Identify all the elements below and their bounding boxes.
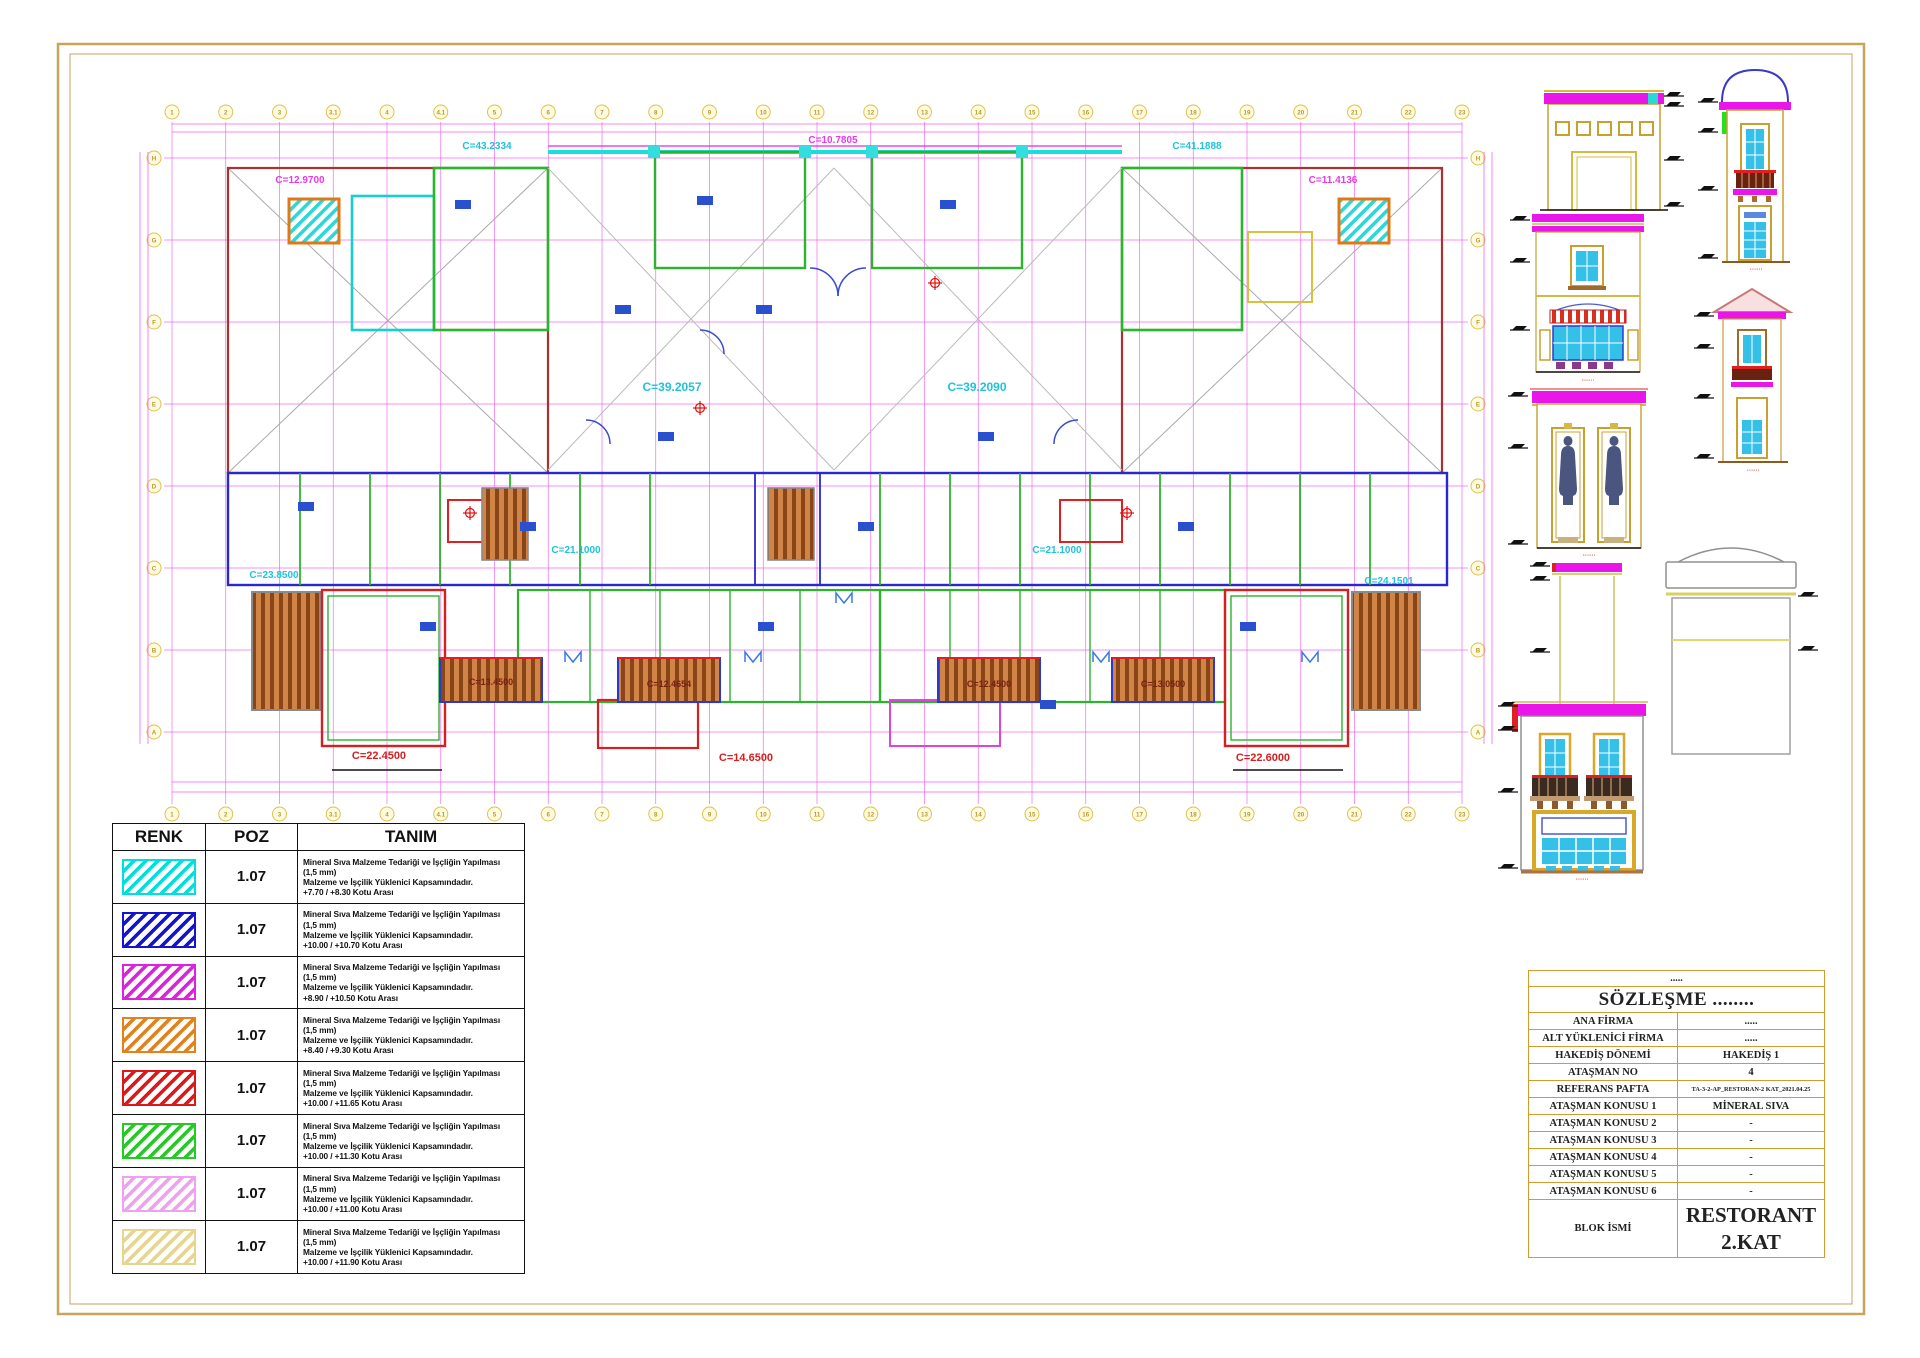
legend-color-cell (113, 1062, 206, 1114)
plan-grid: 1122333.13.1444.14.155667788991010111112… (147, 105, 1485, 821)
svg-text:9: 9 (708, 109, 712, 116)
legend-desc: Mineral Sıva Malzeme Tedariği ve İşçliği… (298, 1221, 524, 1274)
svg-text:4.1: 4.1 (436, 811, 445, 818)
svg-text:1: 1 (170, 811, 174, 818)
titleblock-value: MİNERAL SIVA (1678, 1098, 1824, 1114)
plan-label: C=21.1000 (1032, 545, 1082, 556)
legend-desc-line: (1,5 mm) (303, 1025, 336, 1035)
legend-desc-line: Malzeme ve İşçilik Yüklenici Kapsamındad… (303, 1088, 473, 1098)
elevation-statue-niches: ······· (1530, 389, 1648, 559)
svg-text:14: 14 (975, 811, 982, 818)
legend-desc-line: +10.00 / +11.00 Kotu Arası (303, 1204, 402, 1214)
titleblock-row: ATAŞMAN KONUSU 2 - (1529, 1115, 1824, 1132)
svg-text:10: 10 (760, 811, 767, 818)
svg-text:22: 22 (1405, 109, 1412, 116)
svg-text:8: 8 (654, 811, 658, 818)
legend-desc-line: +10.00 / +11.30 Kotu Arası (303, 1151, 402, 1161)
titleblock-label: ATAŞMAN KONUSU 4 (1529, 1149, 1678, 1165)
titleblock-block-name: RESTORANT 2.KAT (1678, 1200, 1824, 1257)
svg-text:E: E (152, 401, 156, 408)
legend-swatch-pink (122, 1176, 196, 1212)
title-block: ..... SÖZLEŞME ........ ANA FİRMA ..... … (1528, 970, 1825, 1258)
plan-label: C=23.8500 (249, 570, 299, 581)
svg-text:H: H (1476, 155, 1481, 162)
titleblock-row: ANA FİRMA ..... (1529, 1013, 1824, 1030)
legend-desc-line: Malzeme ve İşçilik Yüklenici Kapsamındad… (303, 982, 473, 992)
legend-desc-line: +8.40 / +9.30 Kotu Arası (303, 1045, 393, 1055)
elevation-caption: ······· (1747, 468, 1760, 474)
legend-desc-line: Malzeme ve İşçilik Yüklenici Kapsamındad… (303, 1141, 473, 1151)
elevation-tower-dome: ······· (1719, 70, 1791, 273)
titleblock-row: ATAŞMAN KONUSU 6 - (1529, 1183, 1824, 1200)
legend-row: 1.07 Mineral Sıva Malzeme Tedariği ve İş… (113, 1115, 524, 1168)
plan-label: C=12.9700 (275, 175, 325, 186)
plan-label: C=43.2334 (462, 141, 512, 152)
legend-desc-line: (1,5 mm) (303, 1184, 336, 1194)
svg-text:12: 12 (867, 109, 874, 116)
legend-desc: Mineral Sıva Malzeme Tedariği ve İşçliği… (298, 851, 524, 903)
svg-text:3.1: 3.1 (329, 811, 338, 818)
plan-label: C=13.0500 (1141, 679, 1185, 689)
svg-text:19: 19 (1244, 109, 1251, 116)
legend-color-cell (113, 904, 206, 956)
legend-color-cell (113, 957, 206, 1009)
elevation-tower-pediment: ······· (1714, 289, 1790, 474)
svg-text:6: 6 (547, 109, 551, 116)
titleblock-value: 4 (1678, 1064, 1824, 1080)
svg-text:20: 20 (1297, 109, 1304, 116)
titleblock-label: ATAŞMAN KONUSU 6 (1529, 1183, 1678, 1199)
svg-text:21: 21 (1351, 109, 1358, 116)
plan-label: C=22.6000 (1236, 752, 1290, 764)
dimension-lines (140, 124, 1492, 792)
plan-label: C=21.1000 (551, 545, 601, 556)
titleblock-row: ATAŞMAN NO 4 (1529, 1064, 1824, 1081)
svg-text:H: H (152, 155, 157, 162)
plan-label: C=22.4500 (352, 750, 406, 762)
titleblock-label: HAKEDİŞ DÖNEMİ (1529, 1047, 1678, 1063)
elevation-caption: ······· (1576, 877, 1589, 883)
svg-text:22: 22 (1405, 811, 1412, 818)
svg-text:11: 11 (814, 811, 821, 818)
plan-label: C=39.2090 (947, 380, 1006, 394)
titleblock-row-blok: BLOK İSMİ RESTORANT 2.KAT (1529, 1200, 1824, 1257)
svg-text:15: 15 (1029, 811, 1036, 818)
elevation-caption: ······· (1750, 267, 1763, 273)
legend-desc-line: (1,5 mm) (303, 1078, 336, 1088)
legend-desc-line: Malzeme ve İşçilik Yüklenici Kapsamındad… (303, 1035, 473, 1045)
legend-desc-line: Malzeme ve İşçilik Yüklenici Kapsamındad… (303, 1194, 473, 1204)
legend-desc-line: Mineral Sıva Malzeme Tedariği ve İşçliği… (303, 1068, 500, 1078)
svg-text:16: 16 (1082, 109, 1089, 116)
titleblock-label: ALT YÜKLENİCİ FİRMA (1529, 1030, 1678, 1046)
svg-text:13: 13 (921, 811, 928, 818)
elevation-side-facade: ······· (1532, 214, 1644, 384)
titleblock-value: - (1678, 1183, 1824, 1199)
plan-label: C=12.4654 (647, 679, 691, 689)
legend-poz: 1.07 (206, 1168, 298, 1220)
legend-color-cell (113, 1009, 206, 1061)
legend-poz: 1.07 (206, 904, 298, 956)
svg-text:B: B (152, 647, 157, 654)
room-tags (298, 196, 1256, 709)
legend-header-poz: POZ (206, 824, 298, 850)
svg-text:17: 17 (1136, 811, 1143, 818)
svg-text:2: 2 (224, 109, 228, 116)
elevation-caption: ······· (1583, 553, 1596, 559)
legend-row: 1.07 Mineral Sıva Malzeme Tedariği ve İş… (113, 1168, 524, 1221)
titleblock-value: HAKEDİŞ 1 (1678, 1047, 1824, 1063)
titleblock-row: HAKEDİŞ DÖNEMİ HAKEDİŞ 1 (1529, 1047, 1824, 1064)
svg-text:5: 5 (493, 109, 497, 116)
svg-text:12: 12 (867, 811, 874, 818)
titleblock-row: ATAŞMAN KONUSU 4 - (1529, 1149, 1824, 1166)
titleblock-row: ATAŞMAN KONUSU 1 MİNERAL SIVA (1529, 1098, 1824, 1115)
legend-desc-line: Mineral Sıva Malzeme Tedariği ve İşçliği… (303, 1015, 500, 1025)
elevation-drawings: ······· (1498, 70, 1818, 883)
titleblock-value: TA-3-2-AP_RESTORAN-2 KAT_2021.04.25 (1678, 1081, 1824, 1097)
legend-desc-line: +10.00 / +10.70 Kotu Arası (303, 940, 402, 950)
titleblock-label: ATAŞMAN KONUSU 1 (1529, 1098, 1678, 1114)
svg-text:13: 13 (921, 109, 928, 116)
legend-desc: Mineral Sıva Malzeme Tedariği ve İşçliği… (298, 904, 524, 956)
legend-desc-line: Mineral Sıva Malzeme Tedariği ve İşçliği… (303, 1227, 500, 1237)
svg-text:4: 4 (385, 109, 389, 116)
elevation-front-facade: ······· (1540, 91, 1668, 223)
svg-text:19: 19 (1244, 811, 1251, 818)
plan-label: C=24.1501 (1364, 576, 1414, 587)
plan-label: C=41.1888 (1172, 141, 1222, 152)
plan-label: C=39.2057 (642, 380, 701, 394)
legend-desc: Mineral Sıva Malzeme Tedariği ve İşçliği… (298, 1062, 524, 1114)
legend-desc-line: +10.00 / +11.65 Kotu Arası (303, 1098, 402, 1108)
legend-color-cell (113, 1221, 206, 1274)
legend-swatch-green (122, 1123, 196, 1159)
titleblock-value: ..... (1678, 1030, 1824, 1046)
legend-poz: 1.07 (206, 1221, 298, 1274)
legend-desc-line: Mineral Sıva Malzeme Tedariği ve İşçliği… (303, 909, 500, 919)
legend-swatch-blue (122, 912, 196, 948)
legend-desc-line: Mineral Sıva Malzeme Tedariği ve İşçliği… (303, 962, 500, 972)
svg-text:A: A (152, 729, 157, 736)
legend-poz: 1.07 (206, 1009, 298, 1061)
svg-text:7: 7 (600, 109, 604, 116)
legend-desc-line: +10.00 / +11.90 Kotu Arası (303, 1257, 402, 1267)
legend-swatch-red (122, 1070, 196, 1106)
svg-text:D: D (152, 483, 157, 490)
elevation-caption: ······· (1582, 378, 1595, 384)
svg-text:23: 23 (1459, 811, 1466, 818)
legend-row: 1.07 Mineral Sıva Malzeme Tedariği ve İş… (113, 1221, 524, 1274)
legend-desc-line: Malzeme ve İşçilik Yüklenici Kapsamındad… (303, 930, 473, 940)
svg-text:2: 2 (224, 811, 228, 818)
svg-text:15: 15 (1029, 109, 1036, 116)
titleblock-value: ..... (1678, 1013, 1824, 1029)
legend-poz: 1.07 (206, 1062, 298, 1114)
plan-label: C=13.4500 (469, 677, 513, 687)
legend-poz: 1.07 (206, 851, 298, 903)
svg-text:D: D (1476, 483, 1481, 490)
svg-text:16: 16 (1082, 811, 1089, 818)
titleblock-row: REFERANS PAFTA TA-3-2-AP_RESTORAN-2 KAT_… (1529, 1081, 1824, 1098)
floor-plan (228, 146, 1447, 770)
svg-text:14: 14 (975, 109, 982, 116)
legend-desc: Mineral Sıva Malzeme Tedariği ve İşçliği… (298, 1115, 524, 1167)
svg-text:A: A (1476, 729, 1481, 736)
elevation-balcony-storefront: ······· (1512, 702, 1648, 883)
svg-text:21: 21 (1351, 811, 1358, 818)
titleblock-label: REFERANS PAFTA (1529, 1081, 1678, 1097)
legend-desc-line: Malzeme ve İşçilik Yüklenici Kapsamındad… (303, 877, 473, 887)
legend-swatch-magenta (122, 964, 196, 1000)
svg-text:G: G (1476, 237, 1481, 244)
legend-swatch-khaki (122, 1229, 196, 1265)
svg-text:4.1: 4.1 (436, 109, 445, 116)
titleblock-label: ATAŞMAN KONUSU 3 (1529, 1132, 1678, 1148)
titleblock-label: ANA FİRMA (1529, 1013, 1678, 1029)
titleblock-value: - (1678, 1132, 1824, 1148)
svg-text:4: 4 (385, 811, 389, 818)
legend-desc: Mineral Sıva Malzeme Tedariği ve İşçliği… (298, 957, 524, 1009)
legend-desc: Mineral Sıva Malzeme Tedariği ve İşçliği… (298, 1168, 524, 1220)
svg-text:1: 1 (170, 109, 174, 116)
legend-desc: Mineral Sıva Malzeme Tedariği ve İşçliği… (298, 1009, 524, 1061)
legend-color-cell (113, 851, 206, 903)
elevation-dome-structure (1666, 548, 1796, 754)
legend-header-row: RENK POZ TANIM (113, 824, 524, 851)
legend-desc-line: Mineral Sıva Malzeme Tedariği ve İşçliği… (303, 1173, 500, 1183)
svg-text:10: 10 (760, 109, 767, 116)
plan-label: C=10.7805 (808, 135, 858, 146)
legend-poz: 1.07 (206, 957, 298, 1009)
svg-text:C: C (1476, 565, 1481, 572)
legend-swatch-cyan (122, 859, 196, 895)
legend-swatch-orange (122, 1017, 196, 1053)
legend-row: 1.07 Mineral Sıva Malzeme Tedariği ve İş… (113, 1009, 524, 1062)
svg-text:3: 3 (278, 109, 282, 116)
legend-header-renk: RENK (113, 824, 206, 850)
legend-row: 1.07 Mineral Sıva Malzeme Tedariği ve İş… (113, 851, 524, 904)
svg-text:3: 3 (278, 811, 282, 818)
svg-text:11: 11 (814, 109, 821, 116)
plan-label: C=14.6500 (719, 752, 773, 764)
titleblock-label: ATAŞMAN NO (1529, 1064, 1678, 1080)
plan-label: C=11.4136 (1309, 175, 1358, 186)
legend-desc-line: (1,5 mm) (303, 1237, 336, 1247)
legend-desc-line: (1,5 mm) (303, 867, 336, 877)
titleblock-dots: ..... (1529, 971, 1824, 987)
titleblock-label: BLOK İSMİ (1529, 1200, 1678, 1257)
svg-text:5: 5 (493, 811, 497, 818)
titleblock-row: ALT YÜKLENİCİ FİRMA ..... (1529, 1030, 1824, 1047)
titleblock-value: - (1678, 1115, 1824, 1131)
legend-color-cell (113, 1168, 206, 1220)
legend-desc-line: +7.70 / +8.30 Kotu Arası (303, 887, 393, 897)
titleblock-value: - (1678, 1166, 1824, 1182)
legend-row: 1.07 Mineral Sıva Malzeme Tedariği ve İş… (113, 1062, 524, 1115)
svg-text:3.1: 3.1 (329, 109, 338, 116)
svg-text:C: C (152, 565, 157, 572)
svg-text:B: B (1476, 647, 1481, 654)
legend-desc-line: +8.90 / +10.50 Kotu Arası (303, 993, 398, 1003)
svg-text:G: G (152, 237, 157, 244)
legend-desc-line: (1,5 mm) (303, 920, 336, 930)
svg-text:17: 17 (1136, 109, 1143, 116)
svg-text:8: 8 (654, 109, 658, 116)
titleblock-row: ATAŞMAN KONUSU 5 - (1529, 1166, 1824, 1183)
svg-text:23: 23 (1459, 109, 1466, 116)
titleblock-row: ATAŞMAN KONUSU 3 - (1529, 1132, 1824, 1149)
svg-text:6: 6 (547, 811, 551, 818)
svg-text:20: 20 (1297, 811, 1304, 818)
svg-text:7: 7 (600, 811, 604, 818)
svg-text:F: F (1476, 319, 1480, 326)
titleblock-label: ATAŞMAN KONUSU 5 (1529, 1166, 1678, 1182)
legend-row: 1.07 Mineral Sıva Malzeme Tedariği ve İş… (113, 904, 524, 957)
legend-poz: 1.07 (206, 1115, 298, 1167)
svg-text:E: E (1476, 401, 1480, 408)
svg-text:F: F (152, 319, 156, 326)
legend-desc-line: (1,5 mm) (303, 1131, 336, 1141)
legend-row: 1.07 Mineral Sıva Malzeme Tedariği ve İş… (113, 957, 524, 1010)
legend-color-cell (113, 1115, 206, 1167)
legend-table: RENK POZ TANIM 1.07 Mineral Sıva Malzeme… (112, 823, 525, 1274)
titleblock-title: SÖZLEŞME ........ (1529, 987, 1824, 1013)
svg-text:18: 18 (1190, 109, 1197, 116)
plan-label: C=12.4500 (967, 679, 1011, 689)
legend-desc-line: (1,5 mm) (303, 972, 336, 982)
legend-desc-line: Mineral Sıva Malzeme Tedariği ve İşçliği… (303, 1121, 500, 1131)
plan-labels: C=12.9700 C=43.2334 C=10.7805 C=41.1888 … (249, 135, 1414, 764)
svg-text:9: 9 (708, 811, 712, 818)
titleblock-value: - (1678, 1149, 1824, 1165)
legend-desc-line: Malzeme ve İşçilik Yüklenici Kapsamındad… (303, 1247, 473, 1257)
legend-desc-line: Mineral Sıva Malzeme Tedariği ve İşçliği… (303, 857, 500, 867)
legend-header-tanim: TANIM (298, 824, 524, 850)
titleblock-label: ATAŞMAN KONUSU 2 (1529, 1115, 1678, 1131)
svg-text:18: 18 (1190, 811, 1197, 818)
